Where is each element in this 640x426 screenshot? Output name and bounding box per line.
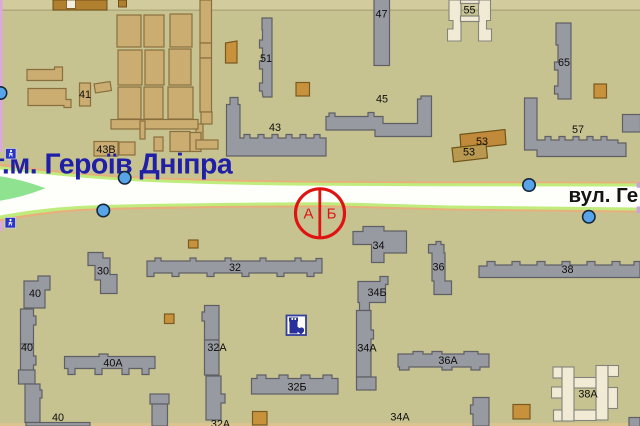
svg-text:40: 40 xyxy=(52,412,64,424)
svg-text:43: 43 xyxy=(269,122,281,134)
svg-text:Б: Б xyxy=(327,206,337,223)
svg-text:34А: 34А xyxy=(390,412,410,424)
svg-text:40: 40 xyxy=(21,342,33,354)
svg-text:34А: 34А xyxy=(357,343,377,355)
svg-text:41: 41 xyxy=(79,89,91,101)
svg-text:вул. Ге: вул. Ге xyxy=(569,184,639,207)
svg-text:45: 45 xyxy=(376,94,388,106)
svg-text:38: 38 xyxy=(561,264,573,276)
svg-text:30: 30 xyxy=(97,266,109,278)
svg-text:57: 57 xyxy=(572,124,584,136)
svg-text:40А: 40А xyxy=(103,358,123,370)
svg-text:40: 40 xyxy=(29,288,41,300)
svg-text:65: 65 xyxy=(558,57,570,69)
svg-text:32: 32 xyxy=(229,262,241,274)
svg-text:36А: 36А xyxy=(438,355,458,367)
svg-text:53: 53 xyxy=(463,147,475,159)
svg-text:55: 55 xyxy=(463,5,475,17)
svg-text:34Б: 34Б xyxy=(367,287,386,299)
svg-text:36: 36 xyxy=(432,262,444,274)
svg-text:32Б: 32Б xyxy=(287,382,306,394)
svg-text:32А: 32А xyxy=(207,342,227,354)
svg-text:32А: 32А xyxy=(211,419,231,426)
svg-text:т.м. Героїв Дніпра: т.м. Героїв Дніпра xyxy=(0,148,234,180)
svg-text:51: 51 xyxy=(260,53,272,65)
svg-text:34: 34 xyxy=(372,240,384,252)
svg-text:38А: 38А xyxy=(578,389,598,401)
svg-text:А: А xyxy=(303,206,313,223)
svg-text:47: 47 xyxy=(375,9,387,21)
svg-text:53: 53 xyxy=(476,136,488,148)
